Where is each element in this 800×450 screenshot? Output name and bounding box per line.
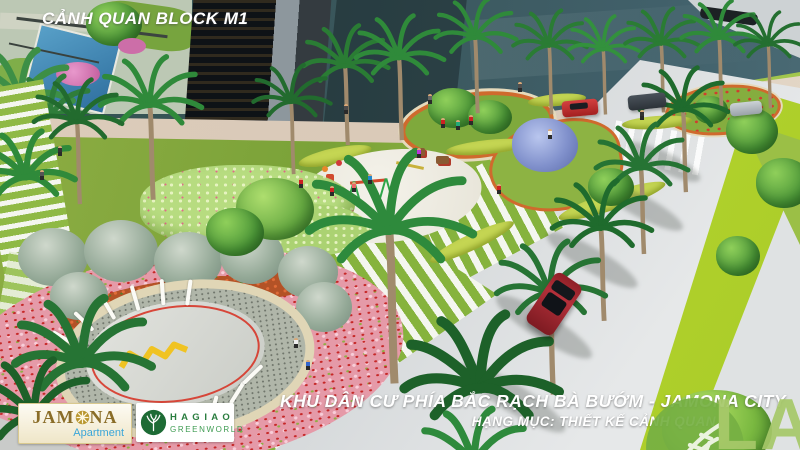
leafy-tree bbox=[206, 208, 264, 256]
person-figure bbox=[548, 129, 552, 139]
watermark-letters: LA bbox=[714, 384, 800, 450]
person-figure bbox=[306, 360, 310, 370]
person-figure bbox=[497, 184, 501, 194]
hagiao-sub-label: GREENWORLD bbox=[170, 425, 244, 434]
person-figure bbox=[344, 104, 348, 114]
palm-tree-icon bbox=[432, 0, 520, 115]
hagiao-tree-icon bbox=[140, 409, 167, 436]
person-figure bbox=[58, 146, 62, 156]
flower-medallion-icon bbox=[75, 410, 90, 425]
person-figure bbox=[456, 120, 460, 130]
person-figure bbox=[640, 110, 644, 120]
person-figure bbox=[428, 94, 432, 104]
person-figure bbox=[417, 148, 421, 158]
person-figure bbox=[368, 174, 372, 184]
palm-tree-icon bbox=[0, 120, 78, 224]
person-figure bbox=[441, 118, 445, 128]
watermark-logo: LA bbox=[636, 388, 800, 450]
car-windows bbox=[570, 102, 588, 110]
person-figure bbox=[330, 186, 334, 196]
person-figure bbox=[352, 182, 356, 192]
person-figure bbox=[294, 338, 298, 348]
person-figure bbox=[40, 170, 44, 180]
person-figure bbox=[299, 178, 303, 188]
render-canvas: CẢNH QUAN BLOCK M1 KHU DÂN CƯ PHÍA BẮC R… bbox=[0, 0, 800, 450]
jamona-sub-label: Apartment bbox=[73, 427, 124, 439]
hagiao-logo: H A G I A O GREENWORLD bbox=[136, 403, 234, 442]
person-figure bbox=[518, 82, 522, 92]
verge-tree bbox=[716, 236, 760, 276]
jamona-logo: JAMNA Apartment bbox=[18, 403, 132, 444]
red-car-small bbox=[561, 98, 598, 117]
purple-flowering-tree bbox=[512, 118, 578, 172]
palm-tree-icon bbox=[732, 6, 800, 110]
page-title: CẢNH QUAN BLOCK M1 bbox=[42, 9, 248, 29]
hagiao-name: H A G I A O bbox=[170, 412, 231, 423]
person-figure bbox=[469, 115, 473, 125]
jamona-name-right: NA bbox=[90, 407, 118, 427]
jamona-name-left: JAM bbox=[33, 407, 75, 427]
